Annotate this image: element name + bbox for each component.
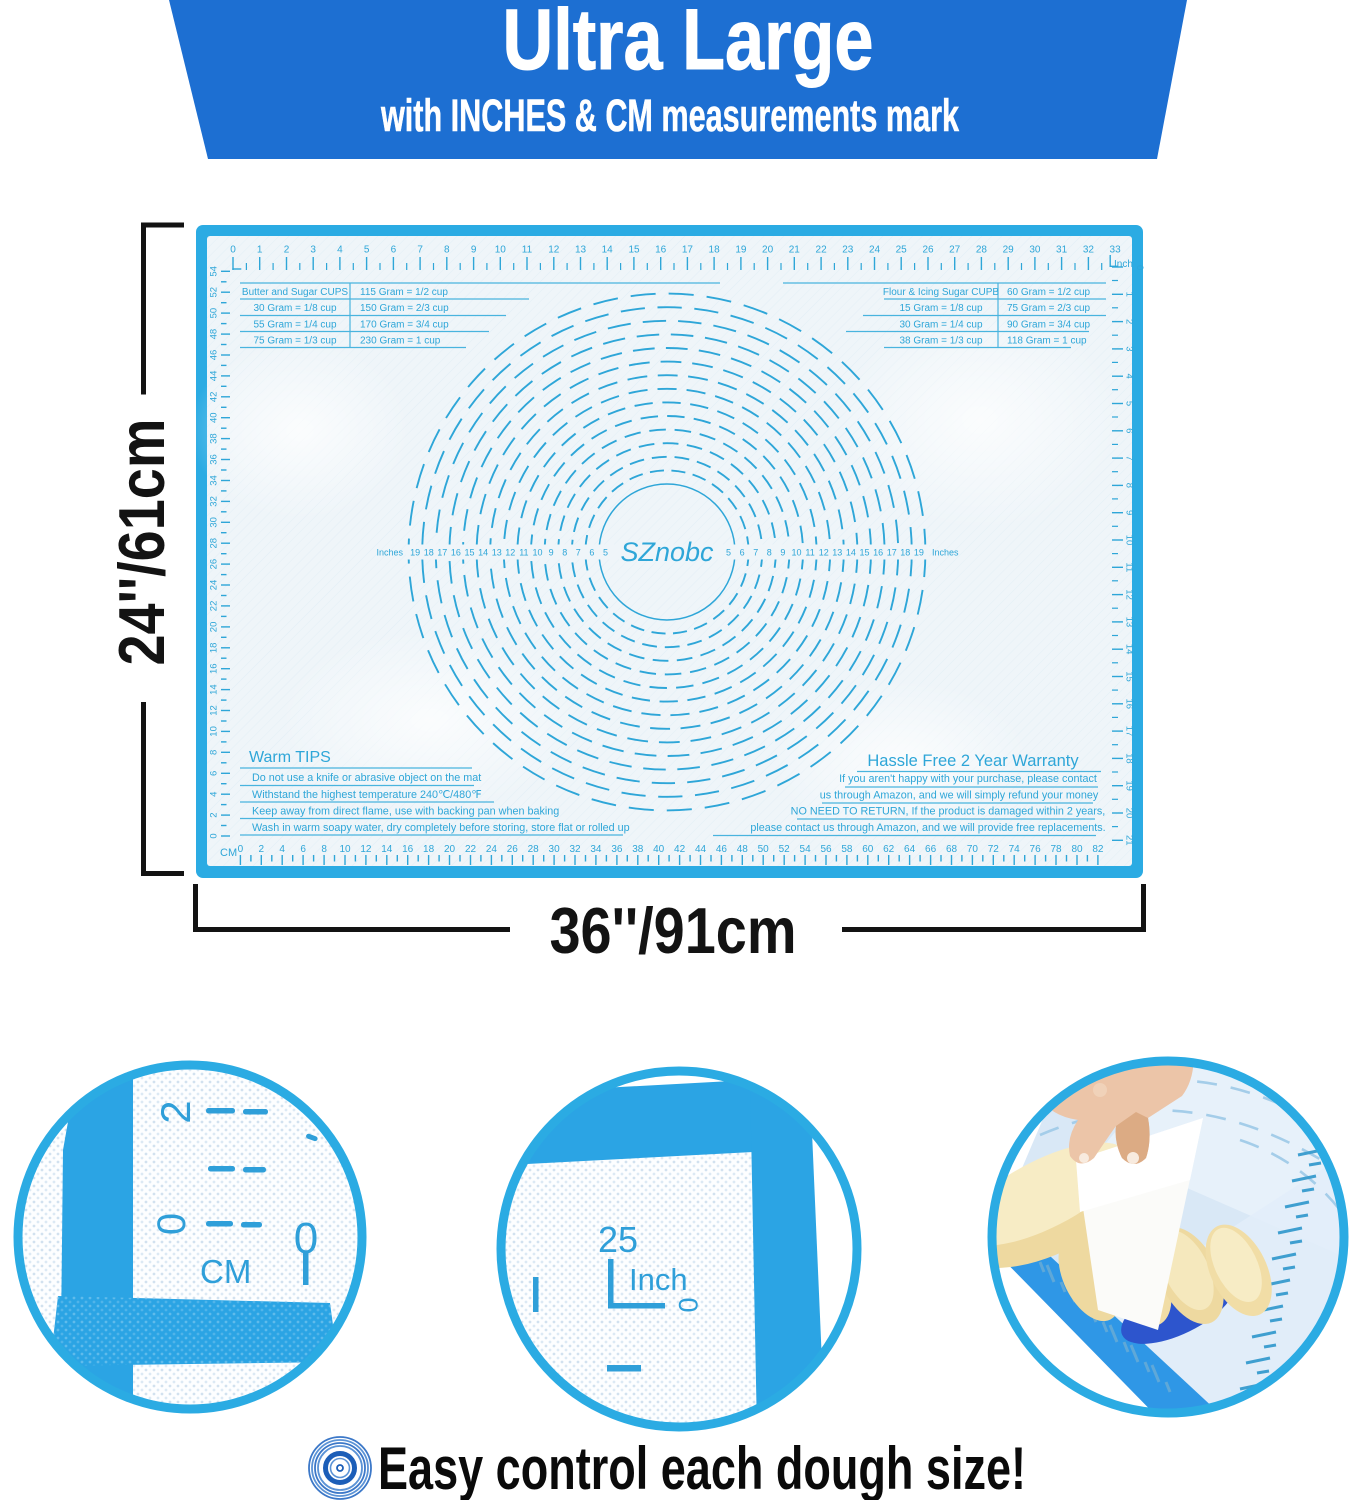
svg-text:20: 20 [444,844,456,855]
svg-text:10: 10 [339,844,351,855]
svg-text:21: 21 [1124,835,1135,846]
svg-text:26: 26 [209,559,220,570]
svg-text:50: 50 [209,308,220,319]
svg-text:8: 8 [444,245,450,256]
svg-text:28: 28 [976,245,988,256]
svg-text:30 Gram = 1/4 cup: 30 Gram = 1/4 cup [899,320,983,331]
svg-text:9: 9 [1124,510,1135,515]
svg-text:2: 2 [152,1100,199,1123]
svg-text:29: 29 [1003,245,1015,256]
svg-text:82: 82 [1092,844,1104,855]
svg-text:12: 12 [505,548,515,558]
svg-text:9: 9 [549,548,554,558]
svg-text:0: 0 [1134,265,1145,270]
svg-text:28: 28 [528,844,540,855]
svg-text:18: 18 [423,844,435,855]
svg-text:4: 4 [1124,374,1135,379]
svg-text:2: 2 [1124,319,1135,324]
svg-text:32: 32 [1083,245,1095,256]
svg-text:Inch: Inch [1114,259,1133,270]
svg-text:48: 48 [737,844,749,855]
svg-text:30: 30 [549,844,561,855]
svg-text:16: 16 [873,548,883,558]
svg-text:78: 78 [1050,844,1062,855]
svg-text:15 Gram = 1/8 cup: 15 Gram = 1/8 cup [899,303,983,314]
svg-text:15: 15 [859,548,869,558]
svg-text:6: 6 [589,548,594,558]
svg-text:0: 0 [238,844,244,855]
svg-text:22: 22 [816,245,828,256]
svg-text:Hassle Free 2 Year Warranty: Hassle Free 2 Year Warranty [867,752,1079,770]
svg-text:80: 80 [1071,844,1083,855]
svg-text:2: 2 [209,812,220,817]
svg-text:16: 16 [402,844,414,855]
svg-text:16: 16 [1124,699,1135,710]
svg-text:14: 14 [381,844,393,855]
svg-text:16: 16 [451,548,461,558]
svg-text:6: 6 [740,548,745,558]
svg-text:16: 16 [209,663,220,674]
svg-text:24: 24 [869,245,881,256]
svg-text:18: 18 [709,245,721,256]
svg-text:14: 14 [602,245,614,256]
svg-text:170 Gram = 3/4 cup: 170 Gram = 3/4 cup [360,320,449,331]
svg-text:Inch: Inch [629,1262,688,1297]
svg-text:Wash in warm soapy water, dry: Wash in warm soapy water, dry completely… [252,822,630,834]
svg-text:60: 60 [862,844,874,855]
svg-text:3: 3 [1124,346,1135,351]
svg-text:76: 76 [1030,844,1042,855]
svg-text:10: 10 [532,548,542,558]
svg-text:19: 19 [914,548,924,558]
svg-text:Do not use a knife or abrasive: Do not use a knife or abrasive object on… [252,772,481,784]
svg-text:13: 13 [575,245,587,256]
svg-text:60 Gram = 1/2 cup: 60 Gram = 1/2 cup [1007,287,1091,298]
svg-text:24: 24 [486,844,498,855]
svg-text:18: 18 [209,643,220,654]
svg-text:19: 19 [1124,780,1135,791]
svg-text:11: 11 [1124,562,1135,572]
svg-text:30 Gram = 1/8 cup: 30 Gram = 1/8 cup [253,303,337,314]
svg-text:36: 36 [209,454,220,465]
svg-text:40: 40 [209,412,220,423]
svg-text:8: 8 [321,844,327,855]
svg-text:8: 8 [562,548,567,558]
svg-text:20: 20 [1124,808,1135,819]
svg-text:46: 46 [209,350,220,361]
svg-text:5: 5 [1124,401,1135,406]
svg-text:20: 20 [762,245,774,256]
svg-text:1: 1 [257,245,263,256]
svg-text:15: 15 [1124,671,1135,682]
svg-text:2: 2 [259,844,265,855]
svg-text:38: 38 [632,844,644,855]
svg-text:Flour & Icing Sugar CUPB: Flour & Icing Sugar CUPB [883,287,999,298]
svg-text:44: 44 [209,371,220,382]
svg-text:34: 34 [590,844,602,855]
svg-text:5: 5 [364,245,370,256]
svg-text:66: 66 [925,844,937,855]
svg-text:14: 14 [209,684,220,695]
svg-text:36''/91cm: 36''/91cm [550,894,797,967]
svg-text:38 Gram = 1/3 cup: 38 Gram = 1/3 cup [899,336,983,347]
svg-text:Keep away from direct flame, u: Keep away from direct flame, use with ba… [252,806,559,818]
svg-text:8: 8 [1124,483,1135,488]
svg-text:4: 4 [337,245,343,256]
svg-text:70: 70 [967,844,979,855]
svg-text:48: 48 [209,329,220,340]
svg-text:17: 17 [887,548,897,558]
svg-text:9: 9 [471,245,477,256]
svg-text:42: 42 [674,844,686,855]
svg-text:40: 40 [653,844,665,855]
svg-text:26: 26 [507,844,519,855]
svg-text:10: 10 [791,548,801,558]
svg-text:0: 0 [150,1213,194,1235]
svg-text:27: 27 [949,245,961,256]
svg-text:14: 14 [1124,644,1135,655]
svg-text:please contact us through Amaz: please contact us through Amazon, and we… [750,822,1105,834]
svg-text:230 Gram = 1 cup: 230 Gram = 1 cup [360,336,441,347]
svg-text:56: 56 [820,844,832,855]
svg-text:22: 22 [465,844,477,855]
svg-text:3: 3 [310,245,316,256]
svg-text:115 Gram = 1/2 cup: 115 Gram = 1/2 cup [360,287,448,298]
svg-text:10: 10 [1124,535,1135,546]
svg-text:18: 18 [1124,753,1135,764]
svg-text:Inches: Inches [932,548,959,558]
svg-text:150 Gram = 2/3 cup: 150 Gram = 2/3 cup [360,303,449,314]
svg-text:7: 7 [576,548,581,558]
svg-text:10: 10 [209,726,220,737]
svg-text:2: 2 [284,245,290,256]
svg-text:62: 62 [883,844,895,855]
svg-text:5: 5 [603,548,608,558]
svg-text:11: 11 [522,245,533,256]
svg-text:13: 13 [832,548,842,558]
svg-text:8: 8 [767,548,772,558]
svg-text:6: 6 [1124,428,1135,433]
svg-text:31: 31 [1056,245,1068,256]
svg-text:9: 9 [780,548,785,558]
svg-text:6: 6 [209,771,220,776]
svg-text:15: 15 [464,548,474,558]
svg-text:20: 20 [209,622,220,633]
svg-text:25: 25 [896,245,908,256]
svg-text:19: 19 [735,245,747,256]
svg-text:13: 13 [492,548,502,558]
svg-text:10: 10 [495,245,507,256]
svg-text:75 Gram = 2/3 cup: 75 Gram = 2/3 cup [1007,303,1091,314]
svg-text:24: 24 [209,580,220,591]
svg-text:12: 12 [360,844,372,855]
svg-text:54: 54 [800,844,812,855]
svg-text:21: 21 [789,245,801,256]
svg-text:17: 17 [682,245,694,256]
svg-text:74: 74 [1009,844,1021,855]
svg-text:6: 6 [300,844,306,855]
svg-text:CM: CM [200,1253,251,1290]
svg-text:Ultra Large: Ultra Large [503,0,874,88]
svg-text:19: 19 [410,548,420,558]
svg-text:0: 0 [209,833,220,838]
svg-text:11: 11 [519,548,528,558]
svg-text:54: 54 [209,266,220,277]
svg-text:13: 13 [1124,617,1135,628]
svg-text:0: 0 [230,245,236,256]
svg-text:22: 22 [209,601,220,612]
svg-text:11: 11 [805,548,814,558]
svg-text:12: 12 [819,548,829,558]
svg-text:50: 50 [758,844,770,855]
svg-text:42: 42 [209,392,220,403]
svg-text:Warm TIPS: Warm TIPS [249,749,331,766]
svg-text:55 Gram = 1/4 cup: 55 Gram = 1/4 cup [253,320,337,331]
svg-text:30: 30 [1029,245,1041,256]
svg-text:7: 7 [1124,455,1135,460]
svg-text:4: 4 [209,792,220,797]
svg-text:NO NEED TO RETURN, If the prod: NO NEED TO RETURN, If the product is dam… [791,806,1106,818]
svg-text:17: 17 [437,548,447,558]
svg-text:30: 30 [209,517,220,528]
svg-text:12: 12 [209,705,220,716]
svg-text:us through Amazon, and we wil: us through Amazon, and we will simply re… [820,790,1099,802]
svg-text:8: 8 [209,750,220,755]
svg-text:32: 32 [209,496,220,507]
svg-text:4: 4 [279,844,285,855]
svg-text:44: 44 [695,844,707,855]
svg-text:7: 7 [753,548,758,558]
svg-text:14: 14 [478,548,488,558]
svg-text:38: 38 [209,433,220,444]
svg-text:CM: CM [220,847,237,859]
svg-text:23: 23 [842,245,854,256]
svg-text:24''/61cm: 24''/61cm [105,419,178,666]
svg-text:52: 52 [209,287,220,298]
svg-text:58: 58 [841,844,853,855]
svg-text:118 Gram = 1 cup: 118 Gram = 1 cup [1007,336,1087,347]
svg-text:28: 28 [209,538,220,549]
svg-text:12: 12 [1124,589,1135,600]
svg-text:Easy control each dough size!: Easy control each dough size! [378,1435,1026,1500]
svg-text:18: 18 [900,548,910,558]
svg-text:Butter and Sugar CUPS: Butter and Sugar CUPS [242,287,348,298]
svg-text:68: 68 [946,844,958,855]
svg-text:Inches: Inches [376,548,403,558]
svg-text:Withstand the highest temperat: Withstand the highest temperature 240℃/4… [252,789,481,801]
svg-text:5: 5 [726,548,731,558]
svg-text:7: 7 [417,245,423,256]
svg-text:25: 25 [598,1219,638,1260]
svg-text:36: 36 [611,844,623,855]
svg-text:SZnobc: SZnobc [620,537,714,567]
svg-text:34: 34 [209,475,220,486]
svg-text:0: 0 [673,1297,703,1312]
svg-text:75 Gram = 1/3 cup: 75 Gram = 1/3 cup [253,336,337,347]
svg-text:72: 72 [988,844,1000,855]
svg-text:33: 33 [1110,245,1122,256]
svg-text:90 Gram = 3/4 cup: 90 Gram = 3/4 cup [1007,320,1091,331]
svg-text:15: 15 [628,245,640,256]
svg-text:1: 1 [1124,292,1135,297]
svg-text:14: 14 [846,548,856,558]
svg-text:26: 26 [922,245,934,256]
svg-text:32: 32 [569,844,581,855]
svg-text:16: 16 [655,245,667,256]
svg-text:17: 17 [1124,726,1135,737]
svg-text:with INCHES & CM measurements: with INCHES & CM measurements mark [380,90,959,141]
svg-text:64: 64 [904,844,916,855]
svg-text:6: 6 [391,245,397,256]
svg-text:46: 46 [716,844,728,855]
svg-text:52: 52 [779,844,791,855]
svg-text:12: 12 [548,245,560,256]
svg-text:18: 18 [424,548,434,558]
svg-text:If you aren't happy with your: If you aren't happy with your purchase, … [839,773,1097,785]
